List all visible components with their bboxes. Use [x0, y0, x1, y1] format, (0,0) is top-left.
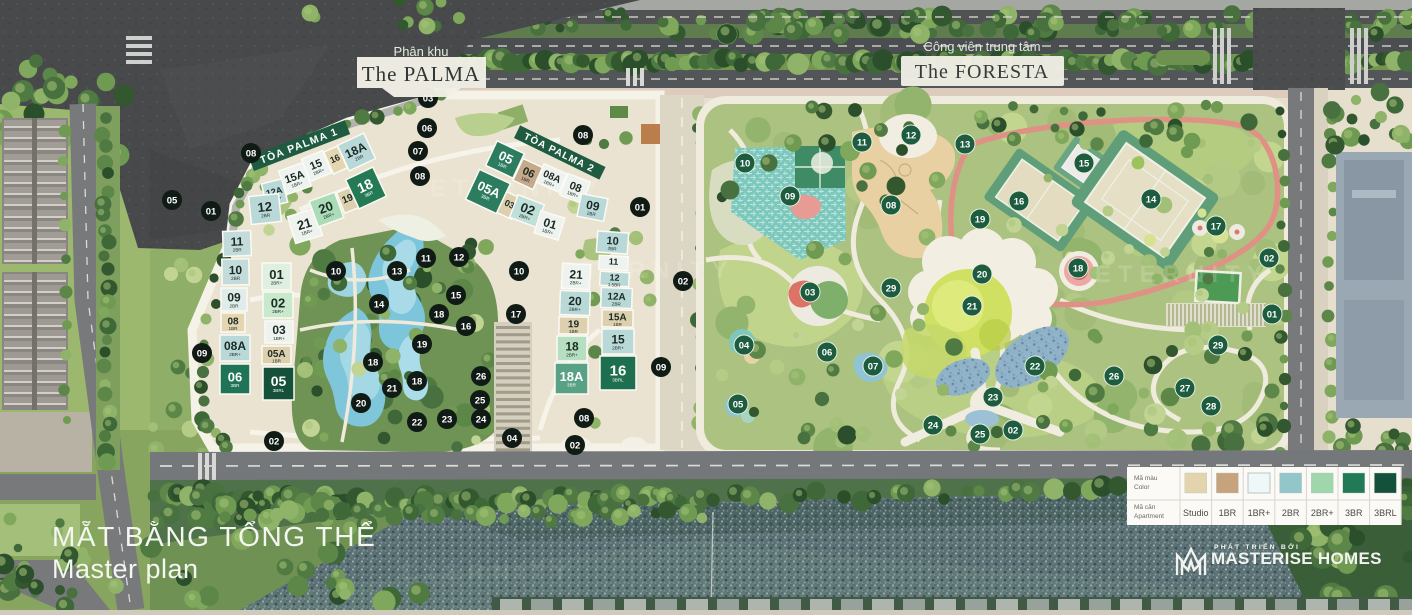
svg-text:2BR+: 2BR+ — [272, 309, 284, 314]
svg-text:09: 09 — [656, 363, 667, 374]
svg-text:01: 01 — [206, 207, 217, 218]
svg-text:3BRL: 3BRL — [1374, 508, 1397, 518]
svg-text:19: 19 — [975, 215, 986, 226]
svg-text:10: 10 — [331, 267, 342, 278]
svg-text:26: 26 — [476, 372, 487, 383]
svg-text:11: 11 — [421, 254, 432, 265]
svg-text:2BR: 2BR — [230, 303, 240, 308]
svg-text:02: 02 — [570, 441, 581, 452]
svg-text:Mã căn: Mã căn — [1134, 504, 1156, 511]
svg-text:19: 19 — [417, 340, 428, 351]
svg-text:2BR+: 2BR+ — [612, 345, 624, 350]
svg-text:01: 01 — [269, 267, 283, 282]
svg-text:2BR+: 2BR+ — [1311, 508, 1334, 518]
svg-text:MASTERISE HOMES: MASTERISE HOMES — [1211, 549, 1382, 568]
svg-text:1BR: 1BR — [229, 326, 239, 331]
svg-text:3BR: 3BR — [231, 383, 241, 388]
svg-text:16: 16 — [461, 322, 472, 333]
svg-text:Công viên trung tâm: Công viên trung tâm — [923, 39, 1040, 54]
svg-text:ETERNITY: ETERNITY — [1095, 261, 1270, 288]
svg-text:01: 01 — [635, 203, 646, 214]
svg-text:08: 08 — [579, 414, 590, 425]
svg-text:07: 07 — [868, 362, 879, 373]
svg-text:08: 08 — [415, 172, 426, 183]
svg-text:14: 14 — [1146, 195, 1157, 206]
svg-text:2BR+: 2BR+ — [229, 352, 241, 357]
svg-text:17: 17 — [511, 310, 522, 321]
svg-text:05: 05 — [271, 373, 287, 389]
svg-text:08: 08 — [246, 149, 257, 160]
svg-text:17: 17 — [1211, 222, 1222, 233]
svg-text:2BR+: 2BR+ — [566, 352, 578, 357]
svg-text:18: 18 — [434, 310, 445, 321]
svg-text:1BR+: 1BR+ — [1248, 508, 1271, 518]
svg-text:Master plan: Master plan — [52, 554, 199, 584]
svg-text:18: 18 — [1073, 264, 1084, 275]
svg-text:01: 01 — [1267, 310, 1278, 321]
svg-text:18A: 18A — [560, 369, 584, 384]
svg-text:02: 02 — [271, 295, 285, 310]
svg-text:23: 23 — [442, 415, 453, 426]
svg-text:Phân khu: Phân khu — [394, 44, 449, 59]
svg-text:27: 27 — [1180, 384, 1191, 395]
svg-text:2BR: 2BR — [612, 301, 622, 306]
svg-text:Mã màu: Mã màu — [1134, 475, 1158, 482]
svg-text:25: 25 — [475, 396, 486, 407]
svg-text:10: 10 — [740, 159, 751, 170]
svg-text:13: 13 — [960, 140, 971, 151]
svg-text:2BR+: 2BR+ — [569, 307, 581, 312]
svg-text:1BR: 1BR — [613, 322, 623, 327]
svg-text:2BR+: 2BR+ — [271, 281, 283, 286]
svg-text:18: 18 — [412, 377, 423, 388]
svg-text:23: 23 — [988, 393, 999, 404]
svg-text:02: 02 — [1264, 254, 1275, 265]
svg-text:29: 29 — [1213, 341, 1224, 352]
svg-text:22: 22 — [1030, 362, 1041, 373]
svg-text:26: 26 — [1109, 372, 1120, 383]
svg-text:12: 12 — [906, 131, 917, 142]
svg-text:14: 14 — [374, 300, 385, 311]
svg-text:04: 04 — [507, 434, 518, 445]
svg-text:1.5BR: 1.5BR — [608, 282, 622, 288]
svg-text:20: 20 — [356, 399, 367, 410]
svg-text:2BR: 2BR — [261, 213, 271, 219]
svg-text:28: 28 — [1206, 402, 1217, 413]
svg-text:The FORESTA: The FORESTA — [915, 61, 1049, 83]
svg-text:22: 22 — [412, 418, 423, 429]
svg-text:Studio: Studio — [1183, 508, 1209, 518]
svg-text:20: 20 — [977, 270, 988, 281]
svg-text:The PALMA: The PALMA — [362, 62, 480, 86]
svg-text:12: 12 — [454, 253, 465, 264]
svg-text:03: 03 — [805, 288, 816, 299]
svg-text:Apartment: Apartment — [1134, 513, 1164, 520]
svg-text:Color: Color — [1134, 484, 1150, 491]
svg-text:3BR: 3BR — [567, 383, 577, 388]
svg-text:29: 29 — [886, 284, 897, 295]
svg-text:02: 02 — [678, 277, 689, 288]
svg-text:24: 24 — [476, 415, 487, 426]
svg-text:ETERNITY: ETERNITY — [400, 559, 575, 586]
svg-text:05: 05 — [733, 400, 744, 411]
svg-text:2BR: 2BR — [231, 276, 241, 281]
svg-text:06: 06 — [822, 348, 833, 359]
svg-text:09: 09 — [785, 192, 796, 203]
svg-text:15: 15 — [451, 291, 462, 302]
svg-text:02: 02 — [1008, 426, 1019, 437]
svg-text:24: 24 — [928, 421, 939, 432]
svg-text:06: 06 — [228, 369, 242, 384]
svg-text:2BR+: 2BR+ — [570, 280, 582, 286]
svg-text:2BR: 2BR — [607, 246, 617, 252]
svg-text:09: 09 — [197, 349, 208, 360]
svg-text:08: 08 — [886, 201, 897, 212]
svg-text:3BRL: 3BRL — [273, 388, 285, 393]
svg-text:05: 05 — [167, 196, 178, 207]
svg-text:08: 08 — [578, 131, 589, 142]
svg-text:16: 16 — [1014, 197, 1025, 208]
svg-text:2BR: 2BR — [1282, 508, 1300, 518]
svg-text:3BR: 3BR — [1345, 508, 1363, 518]
svg-text:11: 11 — [609, 256, 619, 266]
svg-text:21: 21 — [967, 302, 978, 313]
svg-text:MẴT BẰNG TỔNG THỂ: MẴT BẰNG TỔNG THỂ — [52, 520, 376, 552]
svg-text:07: 07 — [413, 147, 424, 158]
svg-text:1BR+: 1BR+ — [273, 336, 285, 341]
svg-text:18: 18 — [368, 358, 379, 369]
svg-text:1BR: 1BR — [569, 329, 579, 334]
svg-text:25: 25 — [975, 430, 986, 441]
svg-text:10: 10 — [514, 267, 525, 278]
svg-text:1BR: 1BR — [272, 359, 282, 364]
svg-text:06: 06 — [422, 124, 433, 135]
svg-text:13: 13 — [392, 267, 403, 278]
svg-text:1BR: 1BR — [1219, 508, 1237, 518]
svg-text:21: 21 — [387, 384, 398, 395]
svg-text:04: 04 — [739, 341, 750, 352]
svg-text:2BR: 2BR — [233, 247, 243, 252]
svg-text:15: 15 — [1079, 159, 1090, 170]
svg-text:02: 02 — [269, 437, 280, 448]
svg-text:3BRL: 3BRL — [612, 378, 624, 383]
svg-text:11: 11 — [857, 138, 868, 149]
